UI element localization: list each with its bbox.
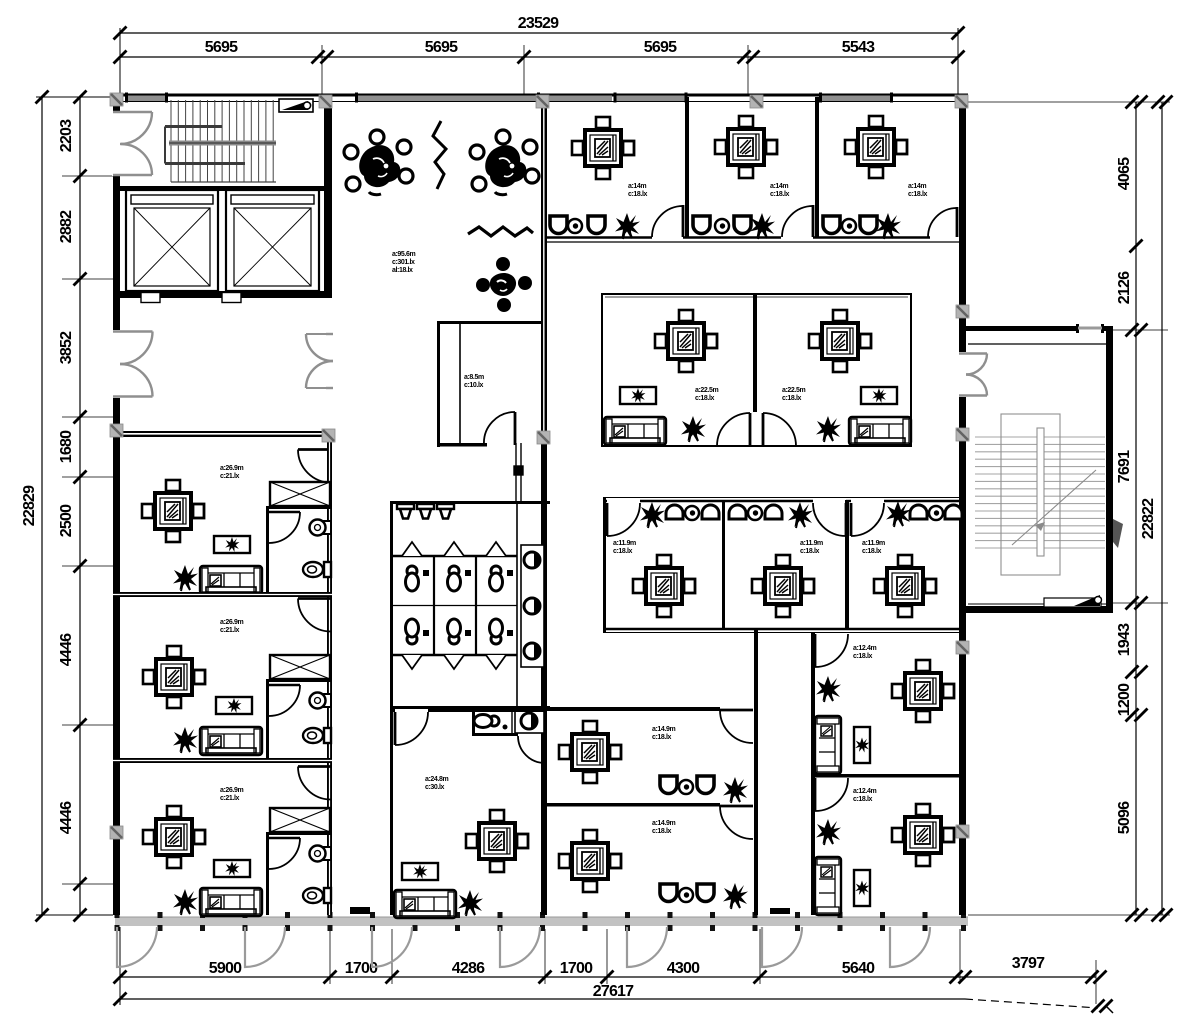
svg-text:22822: 22822: [1140, 498, 1157, 539]
svg-text:c:18.lx: c:18.lx: [853, 653, 872, 660]
svg-text:23529: 23529: [518, 15, 559, 32]
svg-text:c:18.lx: c:18.lx: [695, 395, 714, 402]
svg-text:c:21.lx: c:21.lx: [220, 473, 239, 480]
svg-text:c:10.lx: c:10.lx: [464, 382, 483, 389]
svg-text:a:14m: a:14m: [908, 183, 926, 190]
svg-text:a:14.9m: a:14.9m: [652, 726, 675, 733]
svg-text:3797: 3797: [1012, 955, 1045, 972]
svg-text:1680: 1680: [58, 430, 75, 463]
svg-text:1943: 1943: [1116, 623, 1133, 656]
svg-text:a:26.9m: a:26.9m: [220, 465, 243, 472]
svg-text:5096: 5096: [1116, 801, 1133, 834]
svg-text:a:11.9m: a:11.9m: [613, 540, 636, 547]
svg-text:5695: 5695: [425, 39, 458, 56]
svg-text:a:26.9m: a:26.9m: [220, 787, 243, 794]
svg-text:c:18.lx: c:18.lx: [613, 548, 632, 555]
svg-text:c:18.lx: c:18.lx: [652, 734, 671, 741]
svg-text:a:14m: a:14m: [628, 183, 646, 190]
svg-text:c:18.lx: c:18.lx: [800, 548, 819, 555]
svg-text:5543: 5543: [842, 39, 875, 56]
svg-text:4065: 4065: [1116, 157, 1133, 190]
svg-text:4286: 4286: [452, 960, 485, 977]
svg-text:5695: 5695: [205, 39, 238, 56]
svg-text:c:30.lx: c:30.lx: [425, 784, 444, 791]
svg-text:1700: 1700: [560, 960, 593, 977]
svg-text:a:8.5m: a:8.5m: [464, 374, 484, 381]
svg-text:2882: 2882: [58, 210, 75, 243]
svg-text:3852: 3852: [58, 331, 75, 364]
svg-text:a:26.9m: a:26.9m: [220, 619, 243, 626]
svg-text:c:21.lx: c:21.lx: [220, 795, 239, 802]
svg-text:c:18.lx: c:18.lx: [908, 191, 927, 198]
svg-text:c:301.lx: c:301.lx: [392, 259, 415, 266]
svg-text:4446: 4446: [58, 633, 75, 666]
svg-text:22829: 22829: [21, 485, 38, 526]
svg-text:2126: 2126: [1116, 271, 1133, 304]
svg-text:a:11.9m: a:11.9m: [862, 540, 885, 547]
svg-text:2203: 2203: [58, 119, 75, 152]
svg-text:5695: 5695: [644, 39, 677, 56]
svg-text:a:12.4m: a:12.4m: [853, 788, 876, 795]
svg-text:1200: 1200: [1116, 683, 1133, 716]
svg-text:al:18.lx: al:18.lx: [392, 267, 413, 274]
svg-text:a:95.6m: a:95.6m: [392, 251, 415, 258]
svg-text:a:22.5m: a:22.5m: [695, 387, 718, 394]
svg-text:c:18.lx: c:18.lx: [862, 548, 881, 555]
svg-text:c:18.lx: c:18.lx: [770, 191, 789, 198]
svg-text:5900: 5900: [209, 960, 242, 977]
svg-text:a:12.4m: a:12.4m: [853, 645, 876, 652]
svg-text:c:18.lx: c:18.lx: [853, 796, 872, 803]
svg-text:a:14.9m: a:14.9m: [652, 820, 675, 827]
svg-text:c:18.lx: c:18.lx: [652, 828, 671, 835]
svg-text:a:24.8m: a:24.8m: [425, 776, 448, 783]
svg-text:27617: 27617: [593, 983, 634, 1000]
svg-text:a:11.9m: a:11.9m: [800, 540, 823, 547]
svg-text:a:22.5m: a:22.5m: [782, 387, 805, 394]
svg-text:4446: 4446: [58, 801, 75, 834]
svg-text:4300: 4300: [667, 960, 700, 977]
svg-text:c:18.lx: c:18.lx: [628, 191, 647, 198]
svg-text:a:14m: a:14m: [770, 183, 788, 190]
svg-text:2500: 2500: [58, 504, 75, 537]
svg-text:5640: 5640: [842, 960, 875, 977]
svg-text:c:21.lx: c:21.lx: [220, 627, 239, 634]
svg-text:7691: 7691: [1116, 450, 1133, 483]
svg-text:c:18.lx: c:18.lx: [782, 395, 801, 402]
